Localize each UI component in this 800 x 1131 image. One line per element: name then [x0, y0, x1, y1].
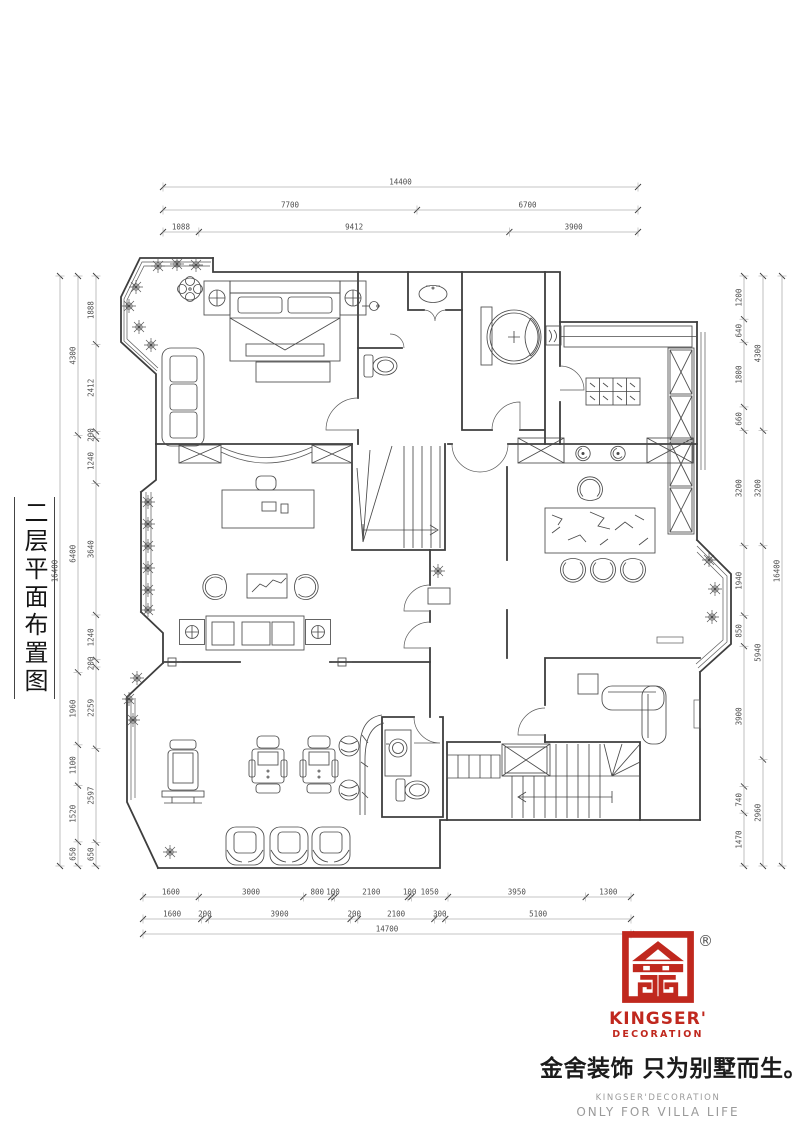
- curved-marble-wall: [360, 715, 384, 815]
- study-bay-window: [146, 492, 151, 612]
- dim-label: 14700: [376, 925, 399, 934]
- dim-label: 1088: [172, 223, 191, 232]
- dim-label: 3950: [508, 888, 527, 897]
- walk-in-closet: [560, 326, 696, 534]
- recliner: [300, 736, 338, 793]
- radiator: [657, 637, 683, 643]
- side-table: [578, 674, 598, 694]
- dim-label: 1100: [69, 756, 78, 775]
- dining-chair: [561, 559, 586, 583]
- dim-label: 1300: [599, 888, 618, 897]
- door-arc: [492, 402, 520, 430]
- dim-label: 3640: [87, 540, 96, 559]
- brand-name: KINGSER': [540, 1011, 776, 1029]
- tea-chair: [295, 575, 319, 600]
- side-table-lamp: [306, 620, 331, 645]
- pillow: [238, 297, 282, 313]
- dim-label: 5100: [529, 910, 548, 919]
- burner-icon: [611, 446, 625, 460]
- armchair: [270, 827, 308, 865]
- dim-label: 1520: [69, 804, 78, 823]
- drawing-title: 二层平面布置图: [14, 497, 55, 699]
- dim-label: 6700: [518, 201, 537, 210]
- dim-label: 200: [347, 910, 361, 919]
- sofa: [162, 348, 204, 446]
- side-table-lamp: [180, 620, 205, 645]
- registered-mark: ®: [698, 932, 713, 950]
- bed: [230, 293, 340, 361]
- dining-chair: [621, 559, 646, 583]
- dim-label: 650: [87, 847, 96, 861]
- dim-label: 640: [735, 323, 744, 337]
- dim-label: 2100: [362, 888, 381, 897]
- dim-label: 2960: [754, 803, 763, 822]
- armchair: [312, 827, 350, 865]
- guest-bathroom: [360, 715, 429, 815]
- dim-label: 6400: [69, 544, 78, 563]
- brand-subname: DECORATION: [540, 1029, 776, 1040]
- dim-label: 9412: [345, 223, 363, 232]
- stair-arrow: [518, 791, 612, 803]
- door-arc: [404, 585, 430, 611]
- dim-label: 660: [735, 412, 744, 426]
- dim-label: 2259: [87, 699, 96, 717]
- door-arc: [404, 622, 430, 648]
- sink-icon: [419, 286, 447, 303]
- dim-label: 1600: [163, 910, 182, 919]
- closet-window: [701, 332, 705, 470]
- burner-icon: [576, 446, 590, 460]
- pillow: [288, 297, 332, 313]
- dim-label: 1600: [162, 888, 181, 897]
- wardrobe-cabinets: [668, 348, 694, 534]
- dim-label: 850: [735, 624, 744, 638]
- dim-label: 1470: [735, 830, 744, 849]
- lounge: [578, 674, 666, 744]
- door-arc: [560, 366, 584, 390]
- tea-chair: [203, 575, 227, 600]
- kingser-logo-icon: [621, 930, 695, 1004]
- study-room: [162, 445, 352, 666]
- lamp-icon: [345, 290, 361, 306]
- brand-block: ® KINGSER' DECORATION 金舍装饰 只为别墅而生。 KINGS…: [540, 930, 776, 1119]
- brand-headline-cn: 金舍装饰 只为别墅而生。: [540, 1049, 776, 1083]
- rug: [256, 362, 330, 382]
- doors: [221, 310, 584, 743]
- master-bedroom: [162, 277, 366, 447]
- closet-island: [586, 378, 640, 405]
- dim-label: 3000: [242, 888, 261, 897]
- dim-label: 4300: [754, 344, 763, 363]
- sink-icon: [386, 739, 407, 757]
- stair-main: [357, 446, 440, 548]
- dim-label: 2100: [387, 910, 406, 919]
- dim-label: 300: [433, 910, 447, 919]
- dim-label: 1888: [87, 301, 96, 320]
- dim-label: 100: [403, 888, 417, 897]
- dim-label: 650: [69, 847, 78, 861]
- vent-fan-icon: [546, 326, 561, 345]
- stair-arrow: [363, 524, 438, 536]
- door-arc: [424, 310, 446, 321]
- door-arc: [326, 398, 358, 430]
- shower-icon: [362, 302, 379, 311]
- toilet-icon: [396, 779, 429, 801]
- dim-label: 3900: [735, 707, 744, 726]
- ball-stool: [339, 736, 359, 756]
- windows: [124, 262, 727, 800]
- desk-chair: [256, 476, 276, 490]
- double-door-arc: [452, 444, 508, 472]
- ball-stool: [339, 780, 359, 800]
- marble-dining-table: [545, 508, 655, 553]
- brand-sub-en: KINGSER'DECORATION: [540, 1093, 776, 1103]
- leisure-room: [162, 736, 359, 865]
- dim-label: 2412: [87, 379, 96, 397]
- door-arc: [390, 334, 404, 348]
- dim-label: 1050: [421, 888, 440, 897]
- dim-label: 800: [311, 888, 325, 897]
- dim-label: 1960: [69, 699, 78, 718]
- dim-label: 14400: [389, 178, 412, 187]
- bay-window: [124, 262, 211, 371]
- tea-counter: [564, 444, 647, 463]
- dim-label: 16400: [773, 559, 782, 582]
- corner-sofa: [602, 686, 664, 710]
- stair-secondary: [447, 744, 640, 818]
- dim-label: 1940: [735, 571, 744, 590]
- plant-icon: [431, 564, 445, 578]
- dim-label: 3200: [735, 479, 744, 498]
- dining-chair: [578, 477, 603, 501]
- dimension-annotations: 1440077006700108894123900160030008001002…: [51, 178, 787, 939]
- lamp-icon: [209, 290, 225, 306]
- door-arc: [518, 708, 545, 735]
- recliner: [249, 736, 287, 793]
- dim-label: 1240: [87, 452, 96, 471]
- dim-label: 100: [326, 888, 340, 897]
- walls: [121, 258, 731, 868]
- dining-room: [518, 438, 693, 582]
- dim-label: 200: [87, 428, 96, 442]
- dim-label: 7700: [281, 201, 300, 210]
- plant-icon: [163, 845, 177, 859]
- ceiling-fan-icon: [178, 277, 203, 302]
- dim-label: 1200: [735, 288, 744, 307]
- hall-shelf: [428, 588, 450, 604]
- dim-label: 4300: [69, 346, 78, 365]
- toilet-icon: [364, 355, 397, 377]
- dim-label: 3200: [754, 479, 763, 498]
- arched-opening: [221, 447, 312, 463]
- dim-label: 1800: [735, 365, 744, 384]
- bed-headboard: [230, 281, 340, 293]
- dining-chair: [591, 559, 616, 583]
- brand-tagline: ONLY FOR VILLA LIFE: [540, 1105, 776, 1119]
- massage-chair: [162, 740, 204, 803]
- dim-label: 2597: [87, 787, 96, 805]
- dim-label: 1240: [87, 628, 96, 647]
- dim-label: 3900: [565, 223, 584, 232]
- vanity-counter: [385, 730, 411, 776]
- dim-label: 200: [198, 910, 212, 919]
- drawing-title-text: 二层平面布置图: [20, 500, 48, 696]
- floor-plan-sheet: 1440077006700108894123900160030008001002…: [0, 0, 800, 1131]
- desk: [222, 490, 314, 528]
- dim-label: 200: [87, 656, 96, 670]
- dim-label: 5940: [754, 643, 763, 662]
- dim-label: 740: [735, 793, 744, 807]
- dim-label: 3900: [271, 910, 290, 919]
- door-arc: [414, 717, 440, 743]
- armchair: [226, 827, 264, 865]
